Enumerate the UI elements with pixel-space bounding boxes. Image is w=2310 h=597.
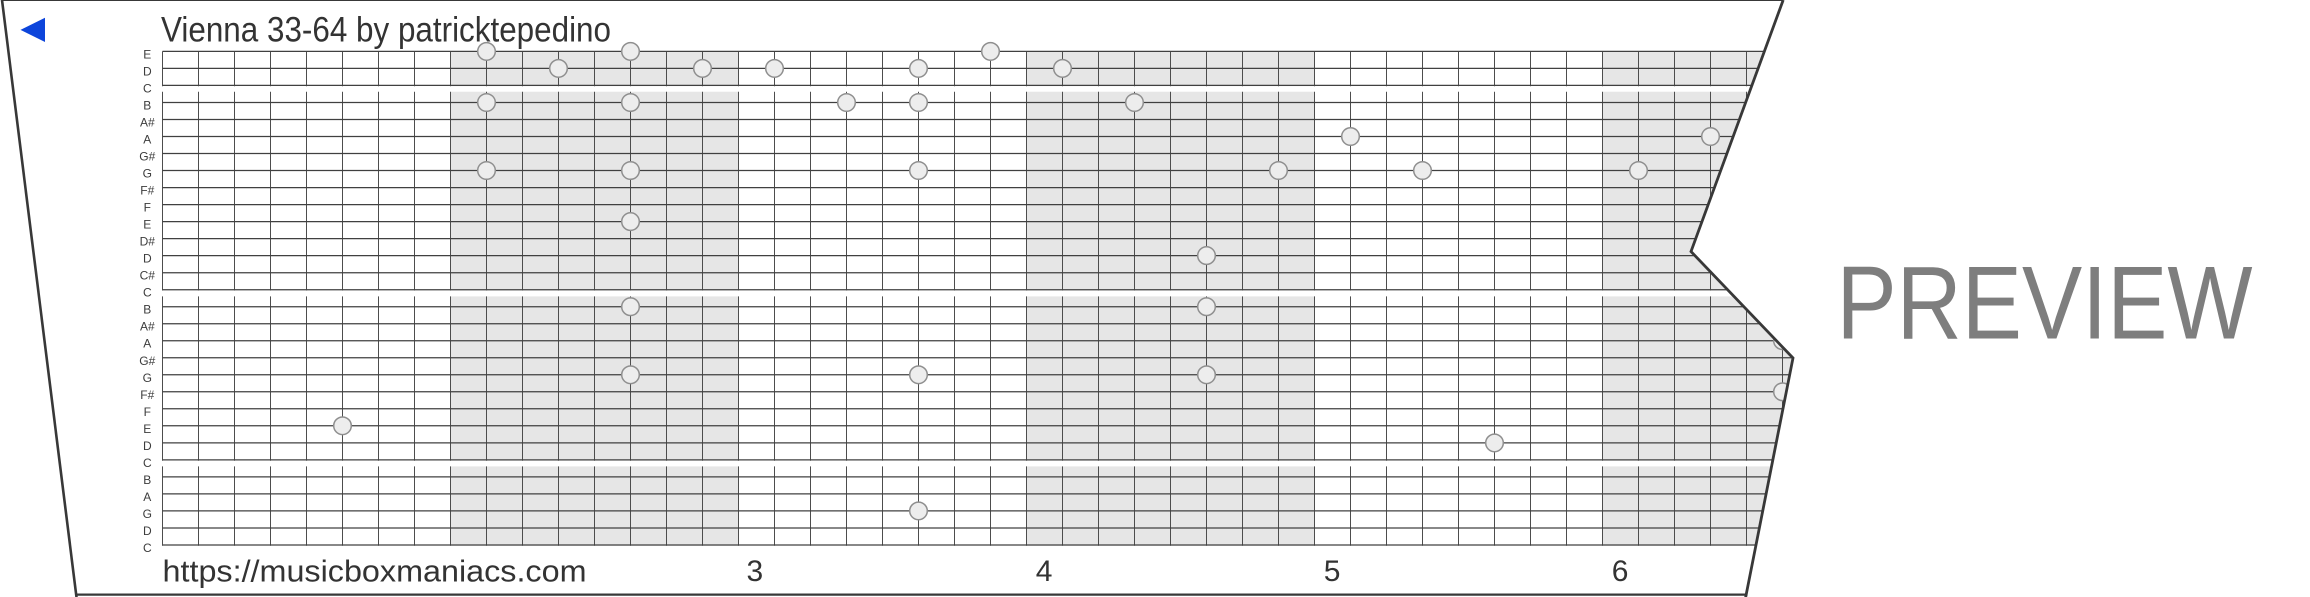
- svg-text:F#: F#: [140, 184, 154, 198]
- svg-text:6: 6: [1612, 555, 1629, 588]
- svg-text:F: F: [144, 201, 151, 215]
- svg-text:G: G: [143, 371, 152, 385]
- svg-text:G#: G#: [139, 354, 155, 368]
- svg-text:D: D: [143, 64, 152, 78]
- svg-text:C: C: [143, 456, 152, 470]
- svg-text:PREVIEW: PREVIEW: [1837, 246, 2253, 362]
- svg-text:4: 4: [1036, 555, 1053, 588]
- svg-text:B: B: [143, 99, 151, 113]
- svg-text:3: 3: [747, 555, 764, 588]
- svg-text:C: C: [143, 286, 152, 300]
- svg-text:D: D: [143, 439, 152, 453]
- svg-text:A: A: [143, 490, 151, 504]
- svg-text:B: B: [143, 473, 151, 487]
- svg-text:A: A: [143, 133, 151, 147]
- svg-text:F: F: [144, 405, 151, 419]
- svg-text:B: B: [143, 303, 151, 317]
- svg-text:F#: F#: [140, 388, 154, 402]
- svg-text:G#: G#: [139, 150, 155, 164]
- svg-text:C: C: [143, 541, 152, 555]
- svg-text:5: 5: [1324, 555, 1341, 588]
- svg-text:A#: A#: [140, 116, 155, 130]
- svg-text:E: E: [143, 422, 151, 436]
- svg-text:G: G: [143, 167, 152, 181]
- svg-text:A: A: [143, 337, 151, 351]
- svg-text:A#: A#: [140, 320, 155, 334]
- svg-text:E: E: [143, 47, 151, 61]
- svg-text:https://musicboxmaniacs.com: https://musicboxmaniacs.com: [163, 554, 587, 589]
- svg-text:Vienna 33-64 by patricktepedin: Vienna 33-64 by patricktepedino: [161, 10, 611, 49]
- svg-text:D: D: [143, 252, 152, 266]
- svg-text:D: D: [143, 524, 152, 538]
- svg-text:G: G: [143, 507, 152, 521]
- svg-text:D#: D#: [140, 235, 156, 249]
- svg-text:C: C: [143, 81, 152, 95]
- svg-text:C#: C#: [140, 269, 156, 283]
- svg-text:E: E: [143, 218, 151, 232]
